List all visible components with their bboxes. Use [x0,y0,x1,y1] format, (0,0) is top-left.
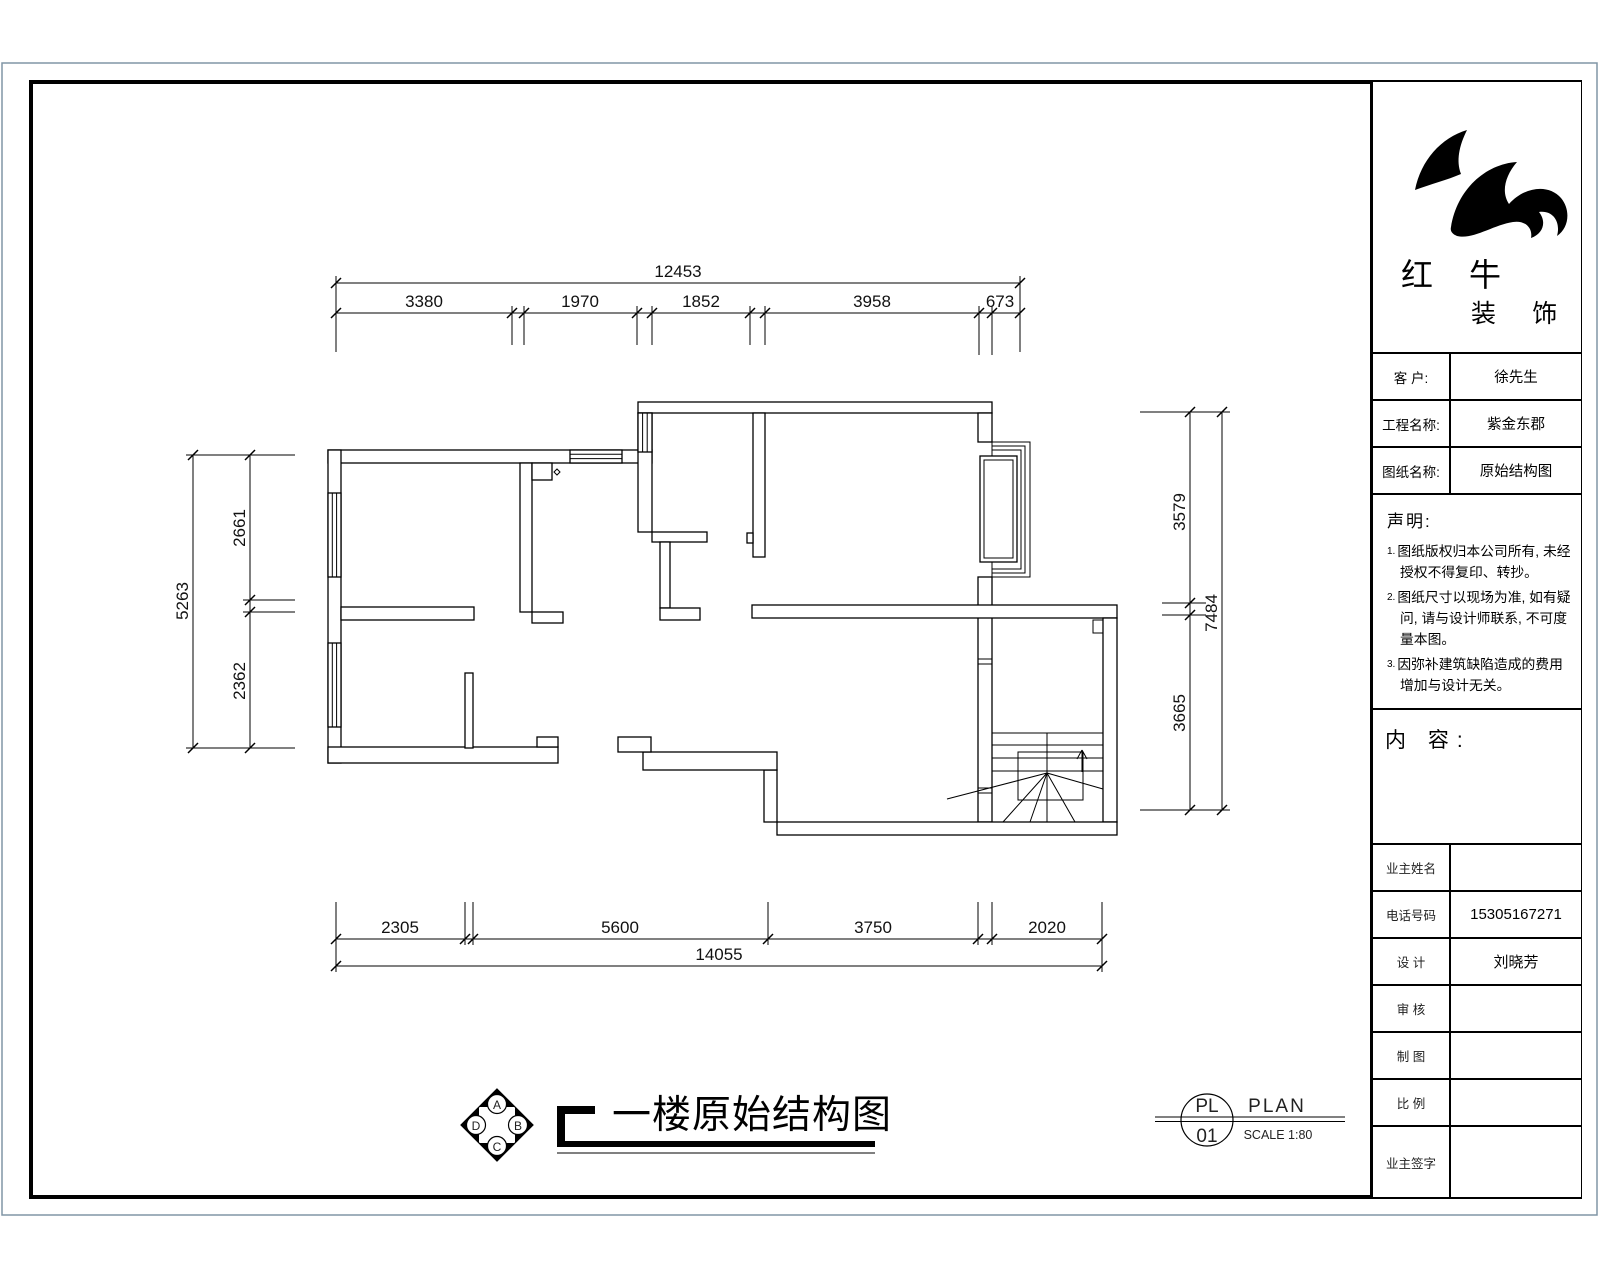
info-row-drawing-name: 图纸名称: 原始结构图 [1373,448,1581,495]
company-name: 红 牛 [1401,250,1515,296]
dim-right-total: 7484 [1202,594,1221,632]
dim-top-seg-1: 3380 [405,292,443,311]
info-value: 原始结构图 [1451,448,1581,493]
window-left-upper [328,493,341,577]
title-block: 红 牛 装 饰 客 户: 徐先生 工程名称: 紫金东郡 图纸名称: 原始结构图 … [1370,82,1581,1197]
plan-ref-label: PLAN [1248,1096,1306,1117]
sign-row-phone: 电话号码 15305167271 [1373,892,1581,939]
dim-right-seg-1: 3579 [1170,493,1189,531]
declaration-section: 声明: 1.图纸版权归本公司所有, 未经授权不得复印、转抄。 2.图纸尺寸以现场… [1373,495,1581,710]
dimension-right: 3579 3665 7484 [1140,407,1230,815]
declaration-heading: 声明: [1387,507,1571,532]
sign-row-owner-signature: 业主签字 [1373,1127,1581,1197]
dim-top-seg-2: 1970 [561,292,599,311]
dim-top-seg-5: 673 [986,292,1014,311]
sign-row-reviewer: 审 核 [1373,986,1581,1033]
dimension-bottom: 2305 5600 3750 2020 14055 [331,902,1107,972]
dimension-left: 5263 2661 2362 [173,450,295,753]
compass-letter-a: A [493,1098,501,1112]
content-section: 内 容: [1373,710,1581,845]
info-label: 客 户: [1373,354,1451,399]
content-heading: 内 容: [1385,724,1569,754]
drawing-sheet: 12453 3380 1970 1852 3958 673 2305 5600 … [0,0,1600,1280]
info-label: 工程名称: [1373,401,1451,446]
compass-symbol: A B C D [461,1089,533,1161]
dimension-top: 12453 3380 1970 1852 3958 673 [331,262,1025,355]
sign-row-drafter: 制 图 [1373,1033,1581,1080]
signature-table: 业主姓名 电话号码 15305167271 设 计 刘晓芳 审 核 制 图 比 … [1373,845,1581,1197]
floor-plan-canvas: 12453 3380 1970 1852 3958 673 2305 5600 … [0,0,1600,1280]
drawing-title: 一楼原始结构图 [612,1094,892,1137]
info-label: 图纸名称: [1373,448,1451,493]
window-left-lower [328,643,341,727]
plan-ref-number: 01 [1196,1126,1217,1147]
compass-letter-c: C [493,1140,502,1154]
dim-left-seg-2: 2362 [230,662,249,700]
dim-top-seg-3: 1852 [682,292,720,311]
staircase [947,620,1103,822]
sign-row-owner-name: 业主姓名 [1373,845,1581,892]
info-value: 徐先生 [1451,354,1581,399]
dim-right-seg-2: 3665 [1170,694,1189,732]
window-top-wall [570,450,622,463]
dim-bottom-seg-1: 2305 [381,918,419,937]
declaration-item: 3.因弥补建筑缺陷造成的费用增加与设计无关。 [1387,655,1571,697]
dim-top-total: 12453 [654,262,701,281]
drawing-title-group: 一楼原始结构图 [557,1094,892,1153]
info-value: 紫金东郡 [1451,401,1581,446]
dim-left-seg-1: 2661 [230,509,249,547]
compass-letter-d: D [472,1119,481,1133]
dim-bottom-seg-4: 2020 [1028,918,1066,937]
stair-up-arrow [1077,750,1087,772]
window-upper-room [638,413,652,452]
info-row-customer: 客 户: 徐先生 [1373,354,1581,401]
plan-ref-symbol: PL 01 PLAN SCALE 1:80 [1155,1094,1345,1147]
dim-bottom-total: 14055 [695,945,742,964]
company-name-sub: 装 饰 [1471,294,1572,330]
bay-window [980,442,1030,577]
declaration-item: 2.图纸尺寸以现场为准, 如有疑问, 请与设计师联系, 不可度量本图。 [1387,588,1571,651]
sheet-frame [2,63,1597,1215]
sign-row-designer: 设 计 刘晓芳 [1373,939,1581,986]
company-logo-area: 红 牛 装 饰 [1373,82,1581,354]
dim-left-total: 5263 [173,582,192,620]
sign-row-scale: 比 例 [1373,1080,1581,1127]
info-row-project: 工程名称: 紫金东郡 [1373,401,1581,448]
compass-letter-b: B [514,1119,522,1133]
marker-dot [554,469,560,475]
plan-ref-code: PL [1195,1096,1218,1117]
dim-bottom-seg-2: 5600 [601,918,639,937]
dim-top-seg-4: 3958 [853,292,891,311]
dim-bottom-seg-3: 3750 [854,918,892,937]
plan-ref-scale: SCALE 1:80 [1244,1128,1313,1142]
declaration-item: 1.图纸版权归本公司所有, 未经授权不得复印、转抄。 [1387,542,1571,584]
